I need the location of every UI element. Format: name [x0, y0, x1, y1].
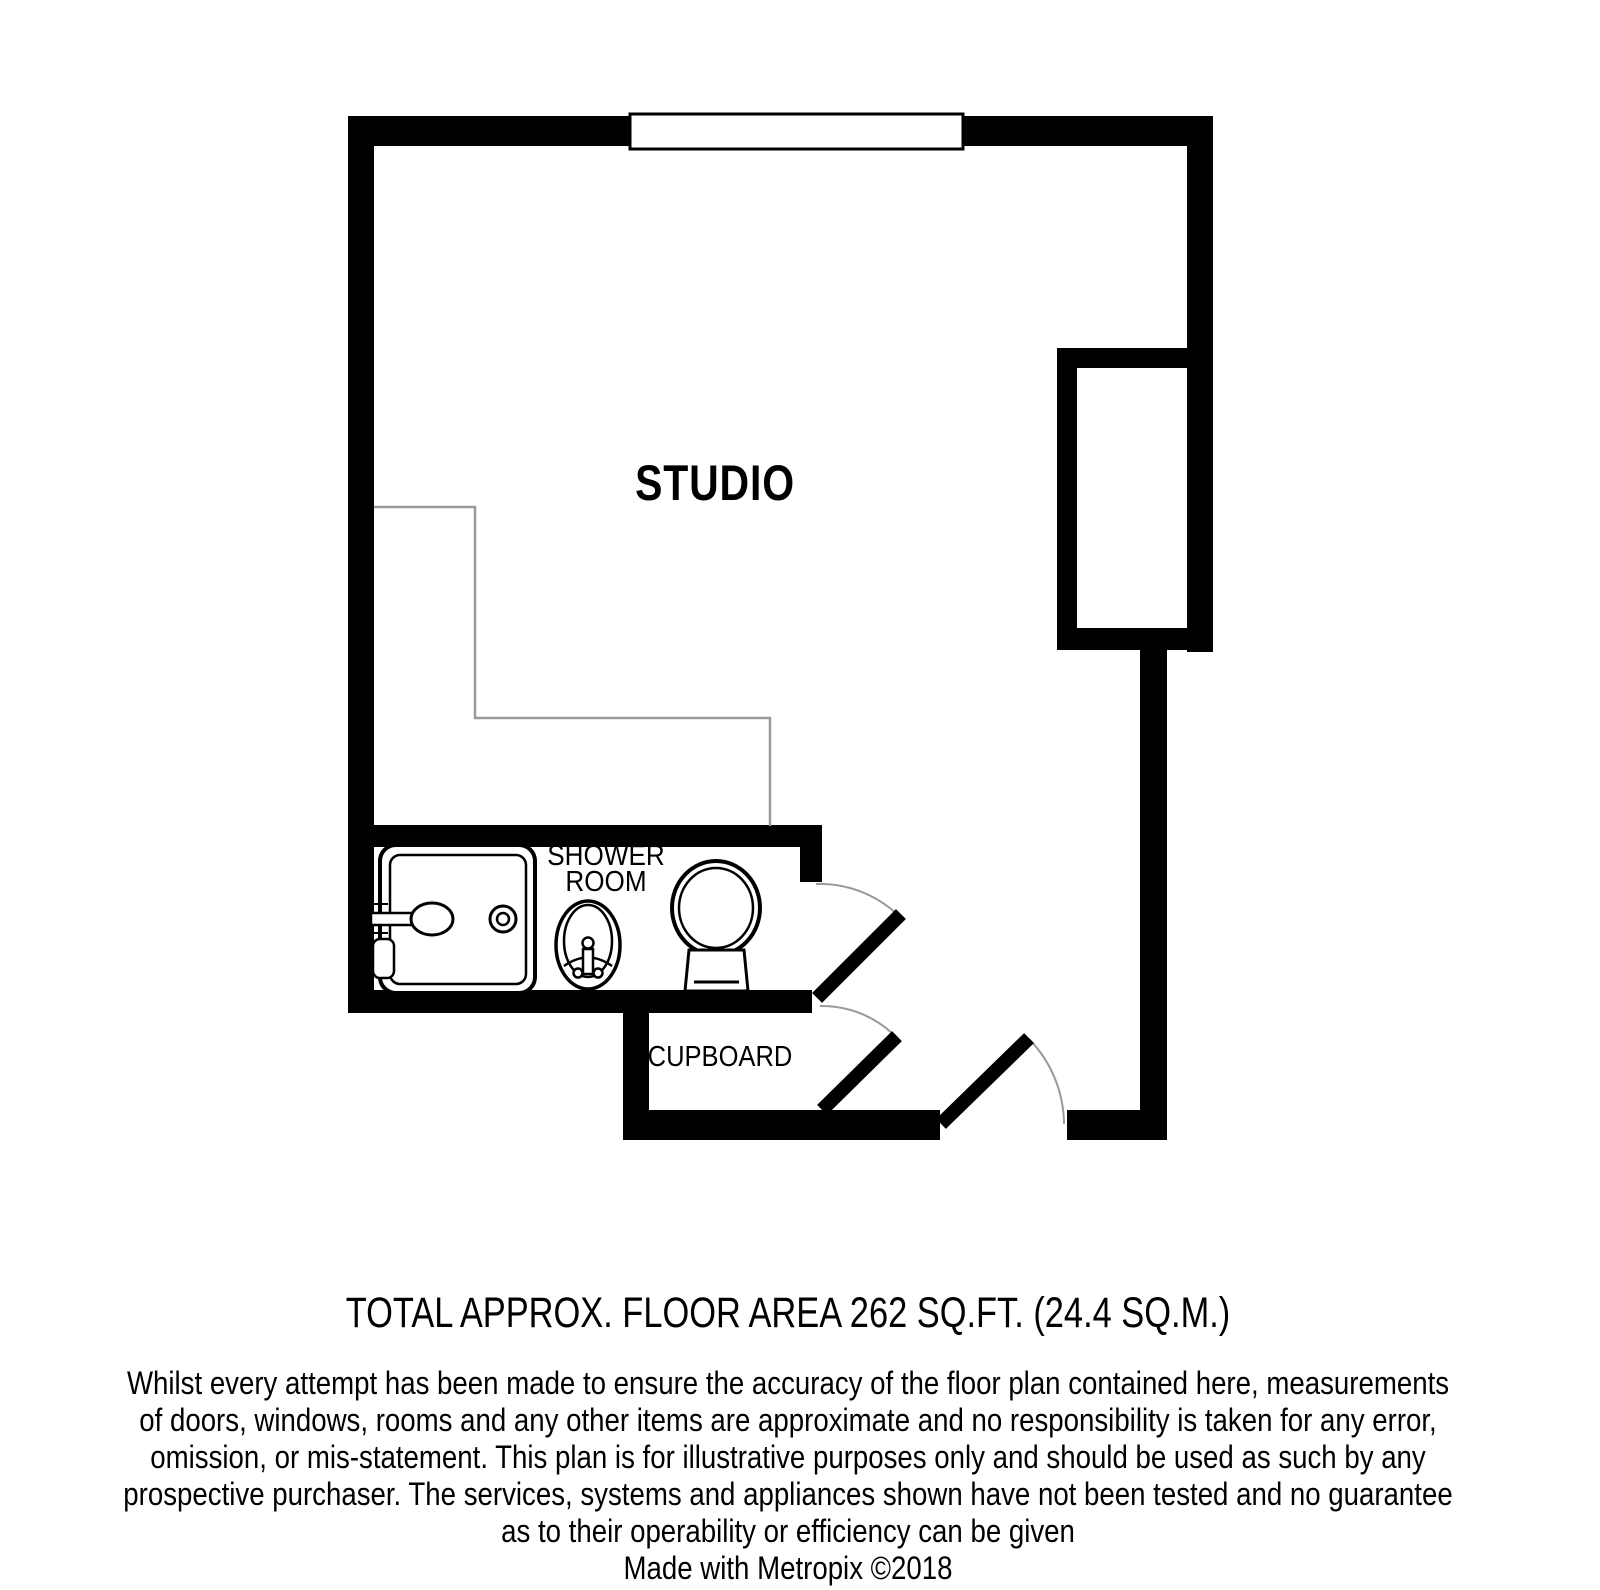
door-swing-arc: [816, 884, 899, 916]
disclaimer-line: prospective purchaser. The services, sys…: [108, 1476, 1468, 1513]
disclaimer-line: Whilst every attempt has been made to en…: [108, 1365, 1468, 1402]
room-label-cupboard: CUPBOARD: [456, 1043, 984, 1072]
room-label-studio: STUDIO: [387, 458, 1043, 508]
room-label-shower-room: SHOWER ROOM: [426, 843, 786, 895]
wall-cupboard-bottom: [623, 1110, 940, 1140]
caption-block: TOTAL APPROX. FLOOR AREA 262 SQ.FT. (24.…: [0, 1292, 1588, 1335]
disclaimer-line: of doors, windows, rooms and any other i…: [108, 1402, 1468, 1439]
wall-right-lower: [1140, 628, 1167, 1140]
wall-recess-left: [1057, 348, 1077, 650]
area-divider-line: [374, 507, 770, 826]
room-label-shower-room-line2: ROOM: [426, 869, 786, 895]
shower-room-door: [816, 884, 899, 993]
credit-line: Made with Metropix ©2018: [108, 1550, 1468, 1587]
floor-plan-drawing: [0, 0, 1600, 1590]
disclaimer-line: as to their operability or efficiency ca…: [108, 1513, 1468, 1550]
wall-left: [348, 116, 374, 1013]
wall-entrance-bottom: [1067, 1110, 1167, 1140]
window-symbol: [630, 114, 963, 149]
wall-recess-bottom: [1057, 628, 1189, 650]
door-leaf: [822, 919, 896, 993]
wall-showerroom-door-stub: [800, 825, 822, 882]
basin-icon: [556, 901, 620, 989]
disclaimer-line: omission, or mis-statement. This plan is…: [108, 1439, 1468, 1476]
door-swing-arc: [820, 1006, 896, 1037]
door-swing-arc: [1029, 1039, 1064, 1124]
floorplan-page: STUDIO SHOWER ROOM CUPBOARD TOTAL APPROX…: [0, 0, 1600, 1590]
disclaimer: Whilst every attempt has been made to en…: [0, 1365, 1588, 1587]
total-area-caption: TOTAL APPROX. FLOOR AREA 262 SQ.FT. (24.…: [148, 1292, 1428, 1335]
wall-right-upper: [1187, 116, 1213, 652]
